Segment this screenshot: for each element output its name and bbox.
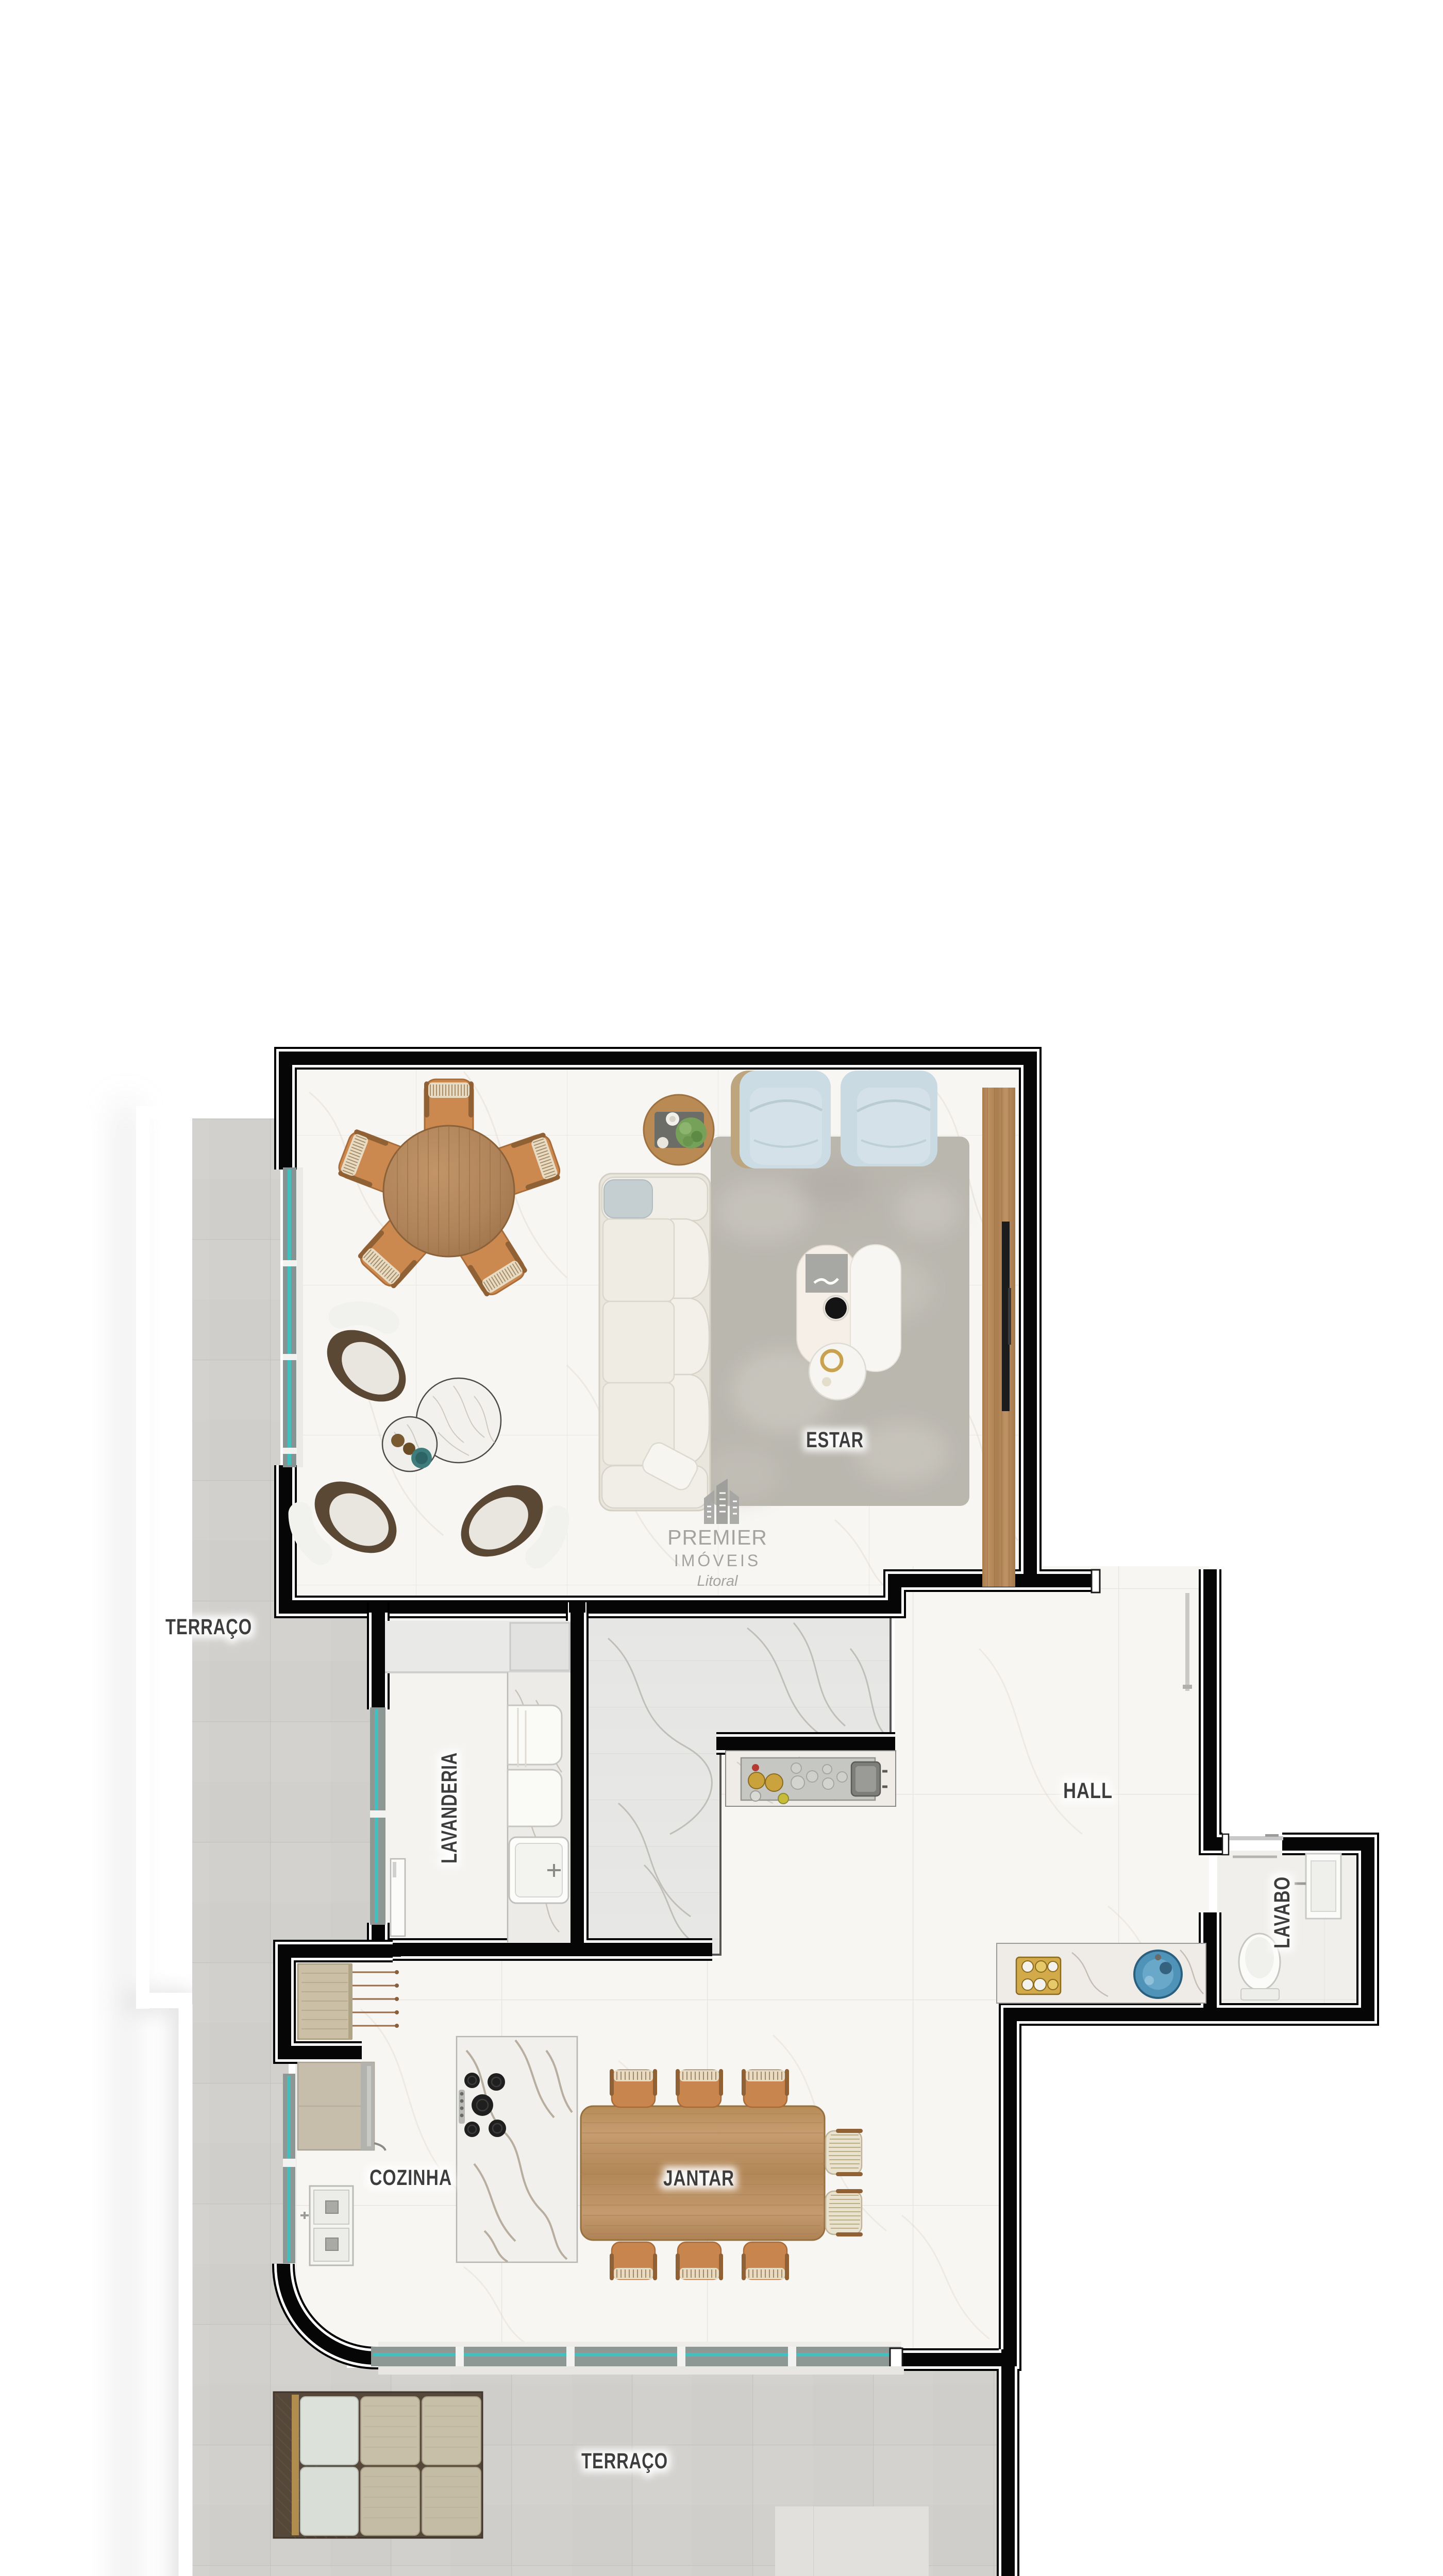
svg-text:PREMIER: PREMIER bbox=[667, 1526, 767, 1549]
svg-text:TERRAÇO: TERRAÇO bbox=[581, 2449, 668, 2473]
svg-text:LAVANDERIA: LAVANDERIA bbox=[437, 1752, 462, 1863]
svg-text:LAVABO: LAVABO bbox=[1270, 1876, 1295, 1948]
svg-text:ESTAR: ESTAR bbox=[806, 1428, 864, 1452]
svg-text:TERRAÇO: TERRAÇO bbox=[165, 1615, 252, 1639]
svg-text:COZINHA: COZINHA bbox=[370, 2165, 452, 2190]
svg-text:JANTAR: JANTAR bbox=[663, 2166, 734, 2191]
svg-text:HALL: HALL bbox=[1063, 1778, 1113, 1803]
svg-text:Litoral: Litoral bbox=[697, 1573, 739, 1589]
svg-text:IMÓVEIS: IMÓVEIS bbox=[674, 1551, 761, 1570]
